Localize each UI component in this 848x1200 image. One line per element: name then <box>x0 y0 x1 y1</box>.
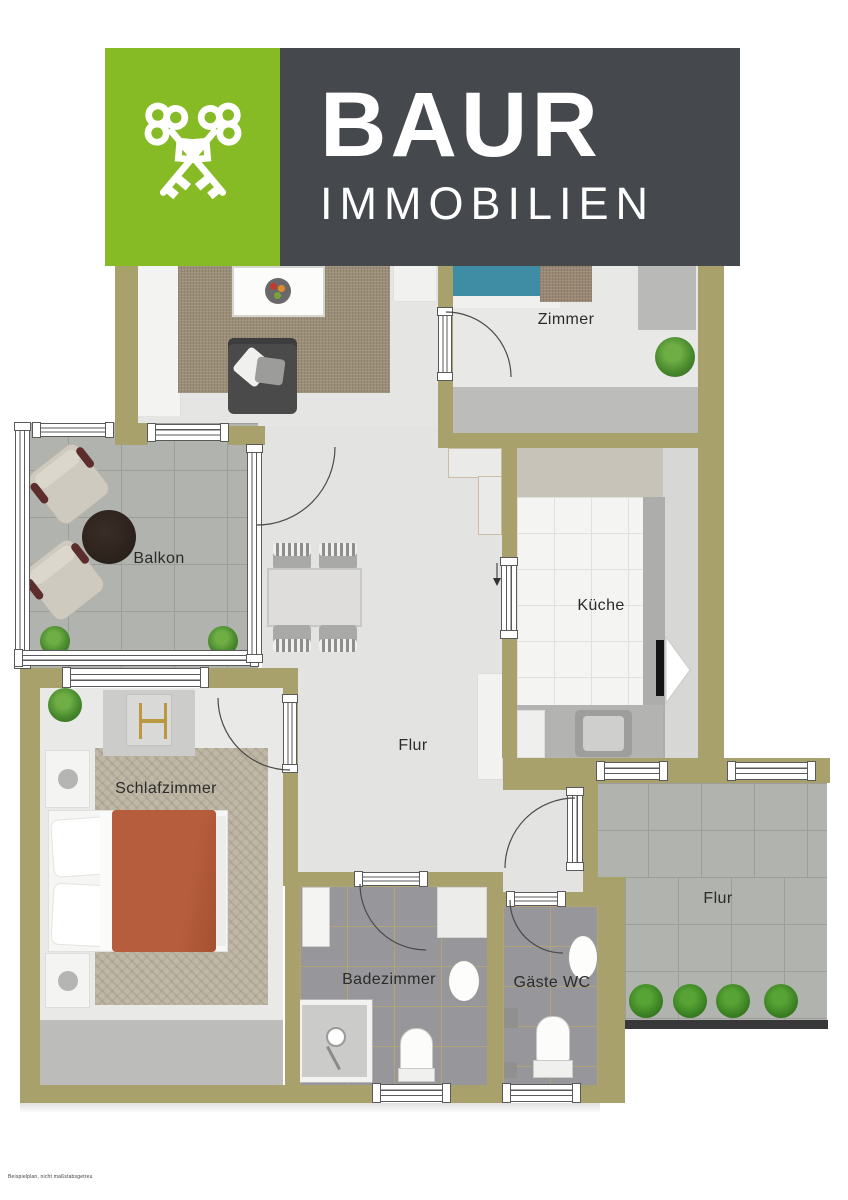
door-frame-entrance <box>567 788 583 870</box>
zimmer-plant <box>655 337 695 377</box>
balcony-railing <box>15 423 30 668</box>
balcony-door-window <box>247 445 262 662</box>
window <box>373 1084 450 1102</box>
door-frame-wc <box>507 892 565 906</box>
room-label-gaeste-wc: Gäste WC <box>514 975 591 991</box>
room-label-schlafzimmer: Schlafzimmer <box>115 781 217 797</box>
bedroom-plant <box>48 688 82 722</box>
fruit-bowl <box>265 278 291 304</box>
bedroom-carpet <box>40 1020 283 1085</box>
dining-chair <box>319 543 357 570</box>
bath-toilet-tank <box>398 1068 435 1082</box>
window <box>148 424 228 441</box>
bush <box>716 984 750 1018</box>
hall-cabinet-top <box>448 448 502 478</box>
shower-head <box>326 1027 346 1047</box>
room-label-badezimmer: Badezimmer <box>342 972 436 988</box>
shower <box>297 1000 372 1082</box>
wall-segment <box>578 1085 600 1103</box>
fruit-orange <box>278 285 285 292</box>
wall-segment <box>115 423 148 445</box>
window <box>503 1084 580 1102</box>
wc-toilet-bowl <box>536 1016 570 1062</box>
door-frame-bedroom <box>283 695 297 772</box>
logo-icon-panel <box>105 48 280 266</box>
wall-segment <box>427 872 503 886</box>
window <box>63 668 208 687</box>
room-label-balkon: Balkon <box>133 551 184 567</box>
living-wardrobe <box>138 266 181 416</box>
zimmer-wardrobe <box>638 266 696 330</box>
kitchen-sink-basin <box>583 716 624 751</box>
bath-sink <box>448 960 480 1002</box>
wall-segment <box>298 872 355 886</box>
wall-segment <box>502 637 517 758</box>
door-frame-bathroom <box>355 872 427 886</box>
lamp <box>58 769 78 789</box>
kitchen-tall-cabinet <box>663 447 698 758</box>
balcony-table <box>82 510 136 564</box>
nightstand-bottom <box>45 953 90 1008</box>
room-label-zimmer: Zimmer <box>538 312 595 328</box>
bed-blanket <box>112 810 216 952</box>
bath-toilet-bowl <box>400 1028 433 1072</box>
brand-subtitle: IMMOBILIEN <box>320 181 740 226</box>
floorplan-page: Zimmer Balkon Küche Flur Schlafzimmer Ba… <box>0 0 848 1200</box>
wall-segment <box>20 1085 375 1103</box>
kitchen-base-cabinet <box>517 710 545 758</box>
disclaimer-text: Beispielplan, nicht maßstabsgetreu <box>8 1174 93 1180</box>
brand-name: BAUR <box>320 84 740 167</box>
wall-segment <box>565 892 598 906</box>
outdoor-flur-floor-upper <box>595 783 827 878</box>
wall-segment <box>228 426 265 445</box>
wall-segment <box>115 266 138 426</box>
fruit-red <box>270 283 277 290</box>
wc-bin <box>504 1062 517 1078</box>
wc-radiator <box>504 1008 518 1028</box>
window <box>728 762 815 780</box>
wall-segment <box>698 266 724 768</box>
lamp <box>58 971 78 991</box>
wc-toilet-tank <box>533 1060 573 1078</box>
wall-segment <box>487 886 503 1103</box>
fruit-green <box>274 292 281 299</box>
washing-machine <box>302 887 330 947</box>
dining-chair <box>273 543 311 570</box>
flur-floor-lower <box>298 668 503 905</box>
desk-chair-frame <box>139 703 167 739</box>
wall-segment <box>598 877 625 1103</box>
dining-chair <box>273 625 311 652</box>
dining-table <box>267 568 362 627</box>
bush <box>764 984 798 1018</box>
window <box>597 762 667 780</box>
kitchen-top-counter <box>517 447 668 497</box>
sofa-pillow-gray <box>254 356 285 386</box>
wall-segment <box>502 448 517 560</box>
fridge-body <box>656 640 664 696</box>
room-label-kueche: Küche <box>577 598 624 614</box>
room-label-flur: Flur <box>398 738 427 754</box>
balcony-railing <box>15 650 258 666</box>
outdoor-edge-strip <box>623 1020 828 1029</box>
room-label-aussen-flur: Flur <box>703 891 732 907</box>
bush <box>629 984 663 1018</box>
wall-segment <box>285 886 300 1103</box>
building-shadow <box>20 1103 600 1113</box>
zimmer-carpet <box>453 387 698 433</box>
dining-chair <box>319 625 357 652</box>
logo-text-panel: BAUR IMMOBILIEN <box>280 48 740 266</box>
bush <box>673 984 707 1018</box>
window <box>501 558 517 638</box>
hall-wardrobe <box>477 673 503 780</box>
balcony-railing <box>33 423 113 437</box>
wall-segment <box>20 668 40 1103</box>
crossed-keys-icon <box>120 84 266 230</box>
wall-segment <box>583 783 598 905</box>
zimmer-rug <box>540 266 592 302</box>
door-frame-zimmer <box>438 308 452 380</box>
bed-rail <box>216 816 226 946</box>
wall-segment <box>448 1085 503 1103</box>
shower-hose <box>326 1046 341 1070</box>
wall-segment <box>20 668 63 688</box>
wall-segment <box>438 433 698 448</box>
hall-cabinet-side <box>478 476 502 535</box>
bath-cabinet <box>437 887 487 938</box>
kitchen-sink <box>575 710 632 757</box>
bedroom-desk-chair <box>126 694 172 746</box>
nightstand-top <box>45 750 90 808</box>
